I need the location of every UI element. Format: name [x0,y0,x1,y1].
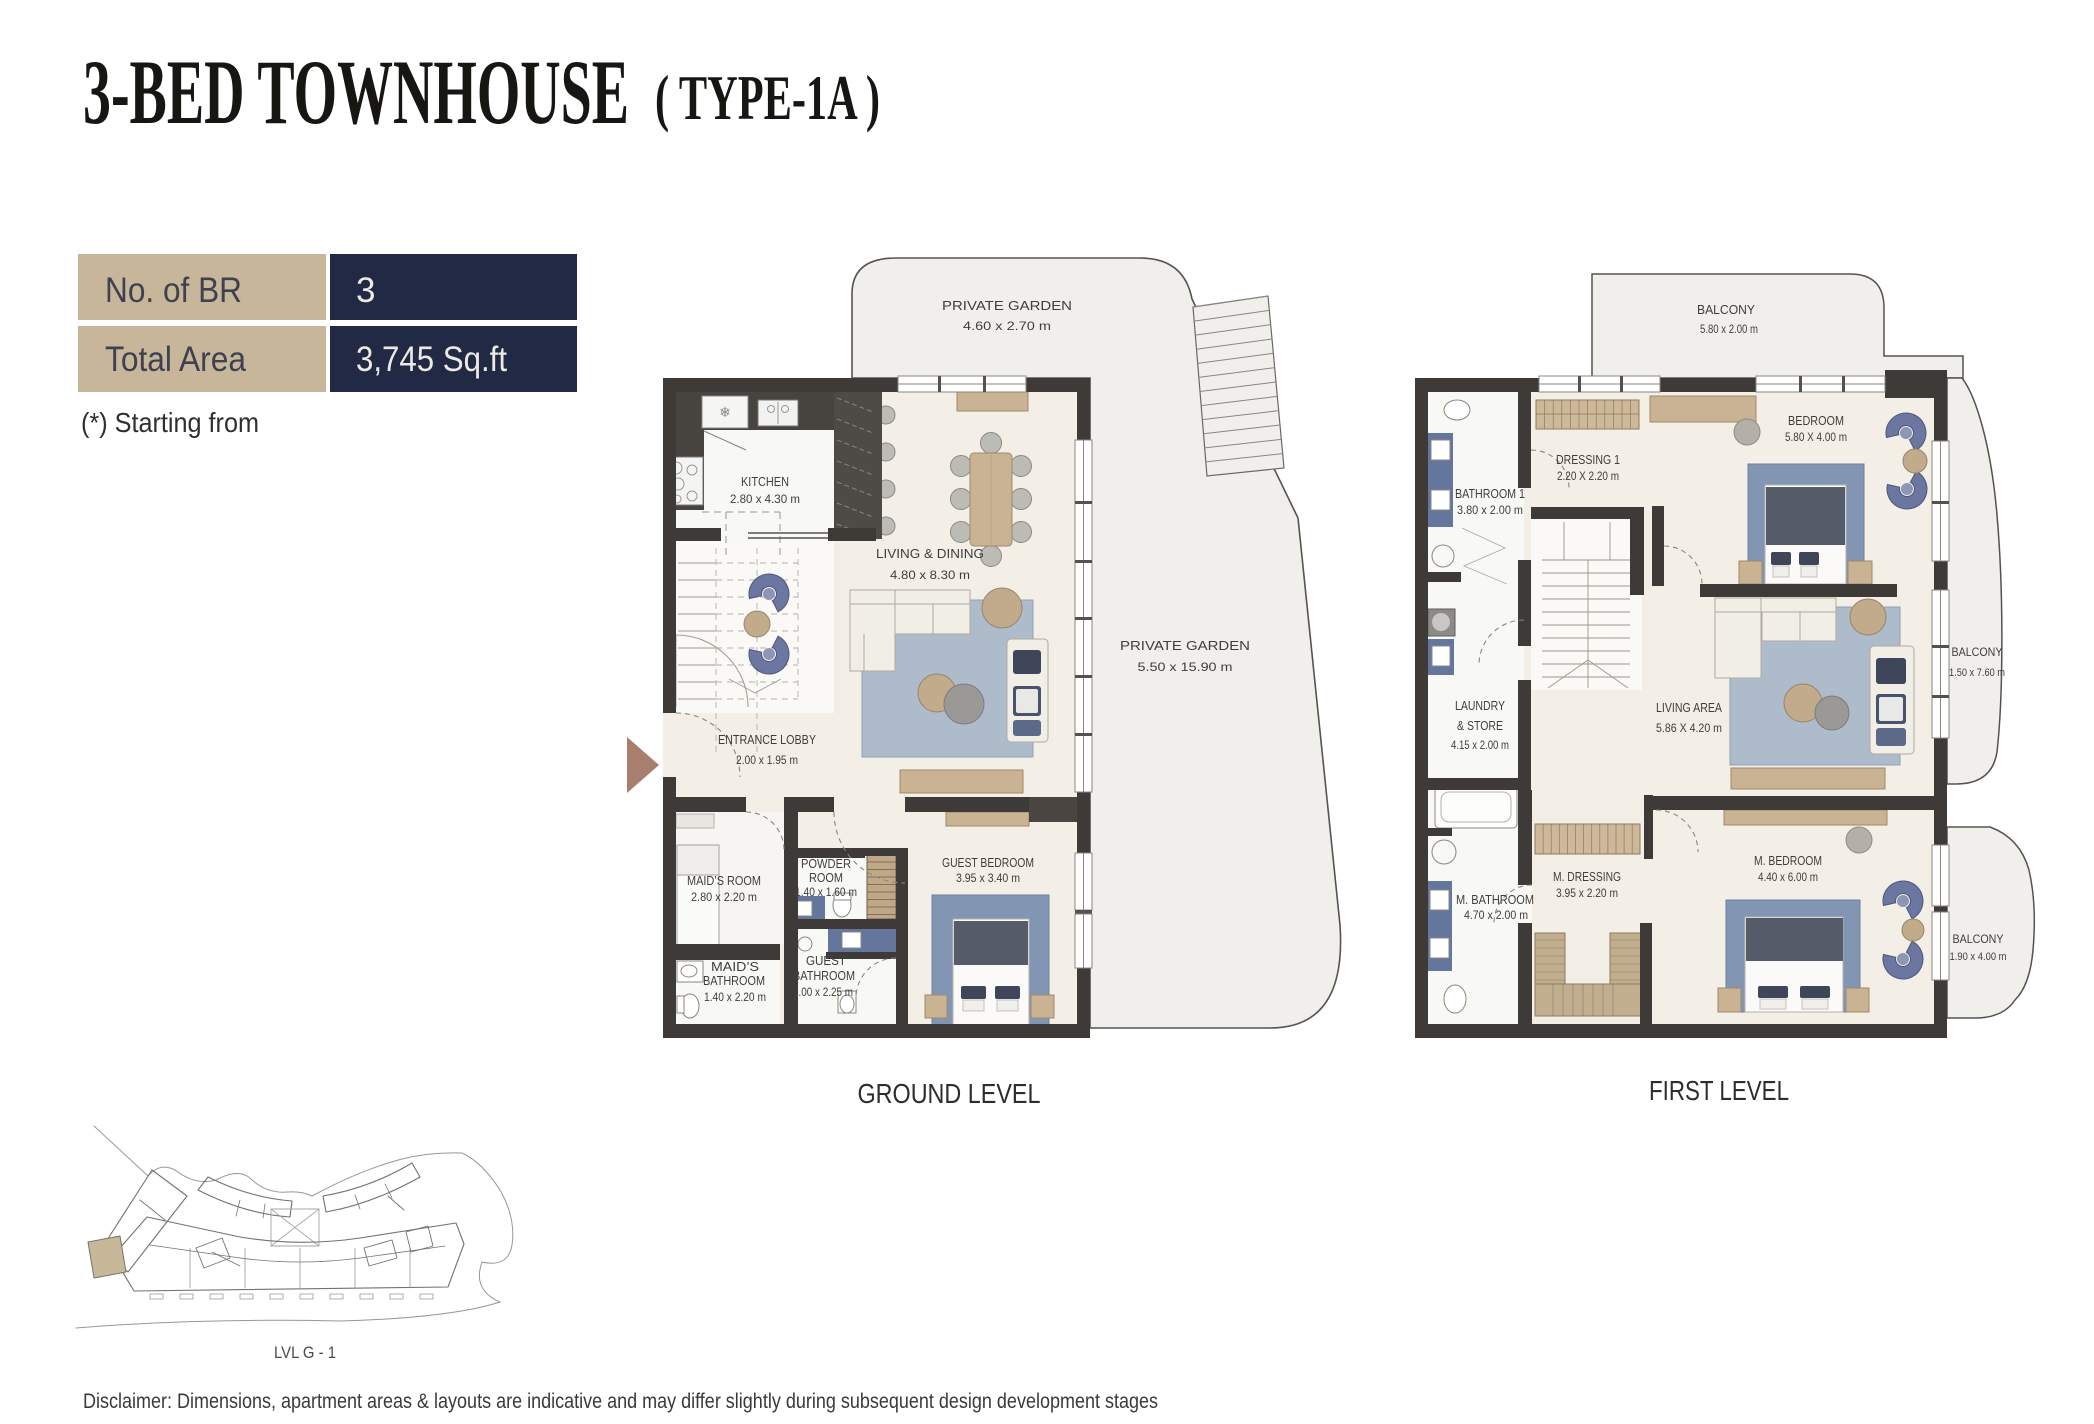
svg-text:5.80 x 2.00 m: 5.80 x 2.00 m [1700,324,1758,336]
svg-text:FIRST LEVEL: FIRST LEVEL [1649,1075,1789,1106]
svg-text:4.15 x 2.00 m: 4.15 x 2.00 m [1451,740,1509,752]
svg-text:BALCONY: BALCONY [1952,645,2003,659]
svg-text:MAID’S: MAID’S [711,960,759,974]
svg-text:Disclaimer: Dimensions, apartm: Disclaimer: Dimensions, apartment areas … [83,1390,1158,1413]
svg-text:DRESSING 1: DRESSING 1 [1556,452,1620,467]
svg-text:MAID’S ROOM: MAID’S ROOM [687,874,761,888]
svg-text:ENTRANCE LOBBY: ENTRANCE LOBBY [718,732,816,747]
svg-text:ROOM: ROOM [809,871,843,885]
svg-text:2.80 x 2.20 m: 2.80 x 2.20 m [691,892,757,904]
svg-text:5.86 X 4.20 m: 5.86 X 4.20 m [1656,723,1722,735]
svg-text:4.60 x 2.70 m: 4.60 x 2.70 m [963,319,1051,333]
svg-text:2.00 x 2.25 m: 2.00 x 2.25 m [793,987,853,999]
svg-text:4.80 x 8.30 m: 4.80 x 8.30 m [890,570,970,582]
svg-text:M. BATHROOM: M. BATHROOM [1456,893,1534,907]
svg-text:LIVING & DINING: LIVING & DINING [876,546,984,561]
svg-text:GROUND LEVEL: GROUND LEVEL [858,1078,1041,1109]
svg-text:2.80 x 4.30 m: 2.80 x 4.30 m [730,494,800,506]
svg-text:BATHROOM: BATHROOM [703,974,765,988]
svg-text:3.95 x 2.20 m: 3.95 x 2.20 m [1556,888,1618,900]
svg-text:4.70 x 2.00 m: 4.70 x 2.00 m [1464,910,1528,922]
svg-text:M. BEDROOM: M. BEDROOM [1754,853,1822,868]
svg-text:1.40 x 1.60 m: 1.40 x 1.60 m [795,887,857,899]
svg-text:5.50 x 15.90 m: 5.50 x 15.90 m [1138,660,1233,674]
svg-text:1.50 x 7.60 m: 1.50 x 7.60 m [1949,667,2005,679]
svg-text:BATHROOM 1: BATHROOM 1 [1455,487,1525,501]
svg-text:3-BED TOWNHOUSE: 3-BED TOWNHOUSE [83,41,629,143]
svg-text:GUEST: GUEST [806,954,846,968]
svg-text:( TYPE-1A ): ( TYPE-1A ) [655,62,880,133]
svg-text:2.20 X 2.20 m: 2.20 X 2.20 m [1557,471,1619,483]
svg-text:Total Area: Total Area [105,340,246,379]
svg-text:GUEST BEDROOM: GUEST BEDROOM [942,855,1034,870]
svg-text:M. DRESSING: M. DRESSING [1553,869,1621,884]
svg-text:❄: ❄ [719,404,731,420]
svg-text:BALCONY: BALCONY [1953,932,2004,946]
svg-text:1.40 x 2.20 m: 1.40 x 2.20 m [704,992,766,1004]
svg-text:BATHROOM: BATHROOM [793,969,855,983]
svg-text:BEDROOM: BEDROOM [1788,413,1844,428]
svg-text:3,745 Sq.ft: 3,745 Sq.ft [356,340,507,379]
svg-text:KITCHEN: KITCHEN [741,474,789,489]
svg-text:LVL G - 1: LVL G - 1 [274,1343,336,1362]
svg-text:No. of BR: No. of BR [105,271,242,310]
svg-text:BALCONY: BALCONY [1697,303,1756,317]
svg-text:& STORE: & STORE [1457,719,1503,733]
svg-text:PRIVATE GARDEN: PRIVATE GARDEN [942,298,1072,313]
svg-text:5.80 X 4.00 m: 5.80 X 4.00 m [1785,432,1847,444]
svg-text:LIVING AREA: LIVING AREA [1656,700,1722,715]
svg-text:POWDER: POWDER [801,857,851,871]
svg-text:3.80 x 2.00 m: 3.80 x 2.00 m [1457,505,1523,517]
svg-text:PRIVATE GARDEN: PRIVATE GARDEN [1120,638,1250,653]
svg-text:(*) Starting from: (*) Starting from [81,407,259,438]
svg-text:3: 3 [356,271,375,310]
svg-text:2.00 x 1.95 m: 2.00 x 1.95 m [736,755,798,767]
svg-text:1.90 x 4.00 m: 1.90 x 4.00 m [1950,951,2007,963]
svg-text:3.95 x 3.40 m: 3.95 x 3.40 m [956,873,1020,885]
svg-text:LAUNDRY: LAUNDRY [1455,699,1506,713]
svg-text:4.40 x 6.00 m: 4.40 x 6.00 m [1758,872,1818,884]
